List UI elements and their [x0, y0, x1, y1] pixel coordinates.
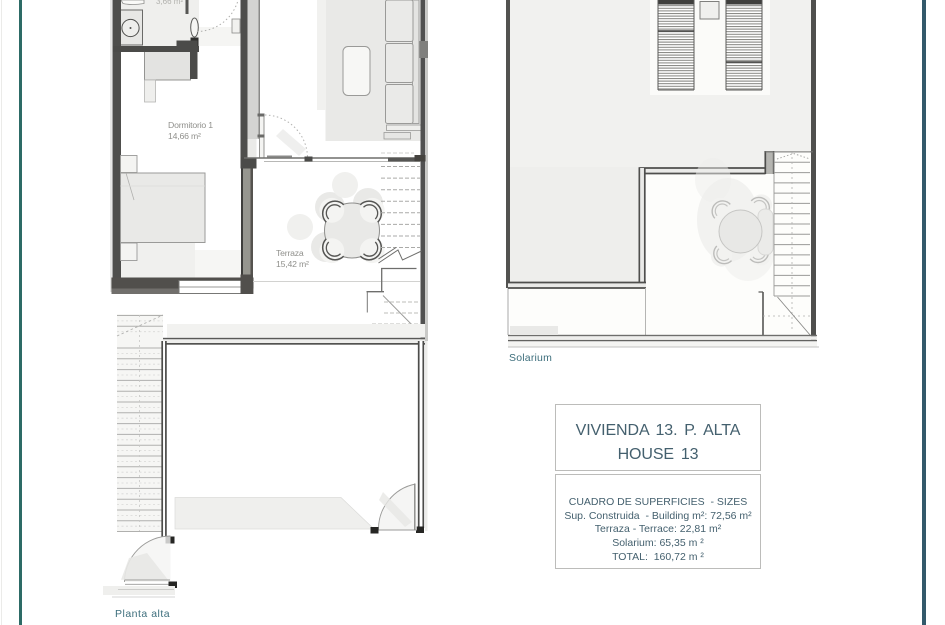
svg-text:Terraza: Terraza — [276, 248, 304, 258]
svg-text:14,66 m²: 14,66 m² — [168, 131, 201, 141]
svg-text:Dormitorio 1: Dormitorio 1 — [168, 120, 213, 130]
svg-text:3,66 m²: 3,66 m² — [156, 0, 183, 6]
svg-text:15,42 m²: 15,42 m² — [276, 259, 309, 269]
